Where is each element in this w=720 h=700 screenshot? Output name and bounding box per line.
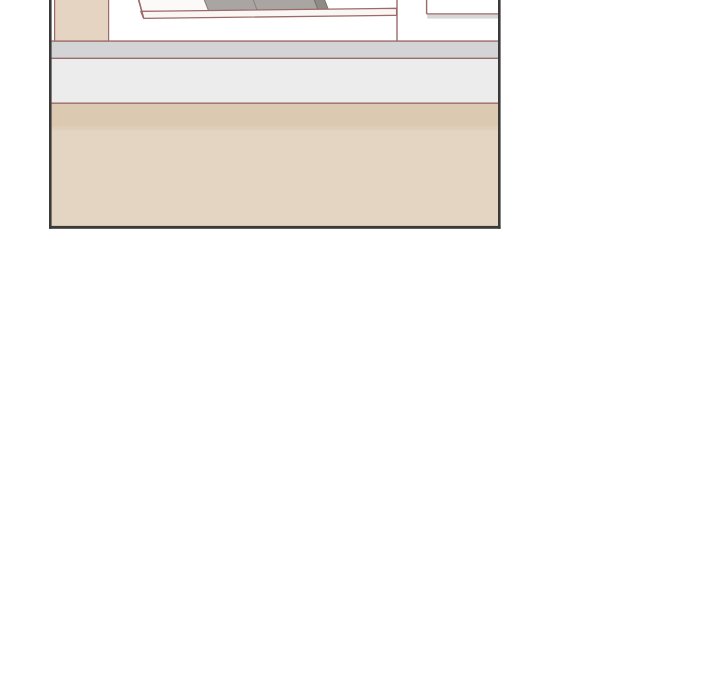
- comic-panel: [49, 0, 501, 230]
- panel-border-right: [498, 0, 501, 229]
- floor-band-light-beige: [52, 131, 498, 227]
- wall-band-lower-light-gray: [52, 59, 498, 104]
- wall-band-upper-gray: [52, 41, 498, 59]
- floor-band-transition: [52, 127, 498, 131]
- right-shelf-underside: [427, 15, 498, 19]
- panel-border-bottom: [49, 226, 501, 229]
- book-white: [138, 0, 209, 11]
- floor-band-dark-beige: [52, 104, 498, 127]
- page-background: [0, 0, 720, 700]
- panel-border-left: [49, 0, 52, 229]
- sideboard-panel: [55, 0, 109, 41]
